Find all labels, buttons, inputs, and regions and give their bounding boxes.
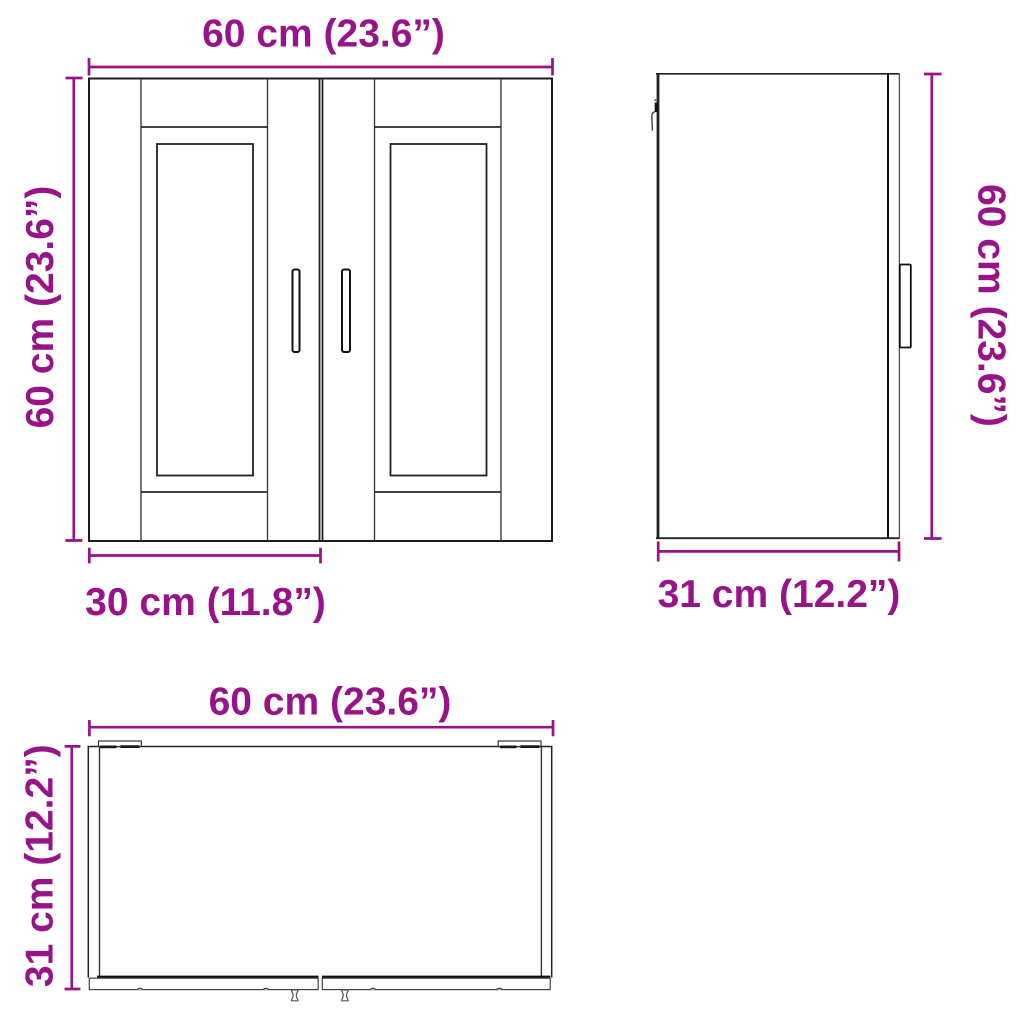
svg-text:31 cm (12.2”): 31 cm (12.2”): [658, 573, 901, 616]
svg-text:60 cm (23.6”): 60 cm (23.6”): [209, 681, 452, 724]
svg-text:60 cm (23.6”): 60 cm (23.6”): [970, 184, 1013, 427]
svg-text:60 cm (23.6”): 60 cm (23.6”): [19, 186, 62, 429]
svg-text:30 cm (11.8”): 30 cm (11.8”): [85, 581, 326, 624]
svg-text:60 cm (23.6”): 60 cm (23.6”): [202, 13, 445, 56]
svg-text:31 cm (12.2”): 31 cm (12.2”): [19, 744, 62, 987]
